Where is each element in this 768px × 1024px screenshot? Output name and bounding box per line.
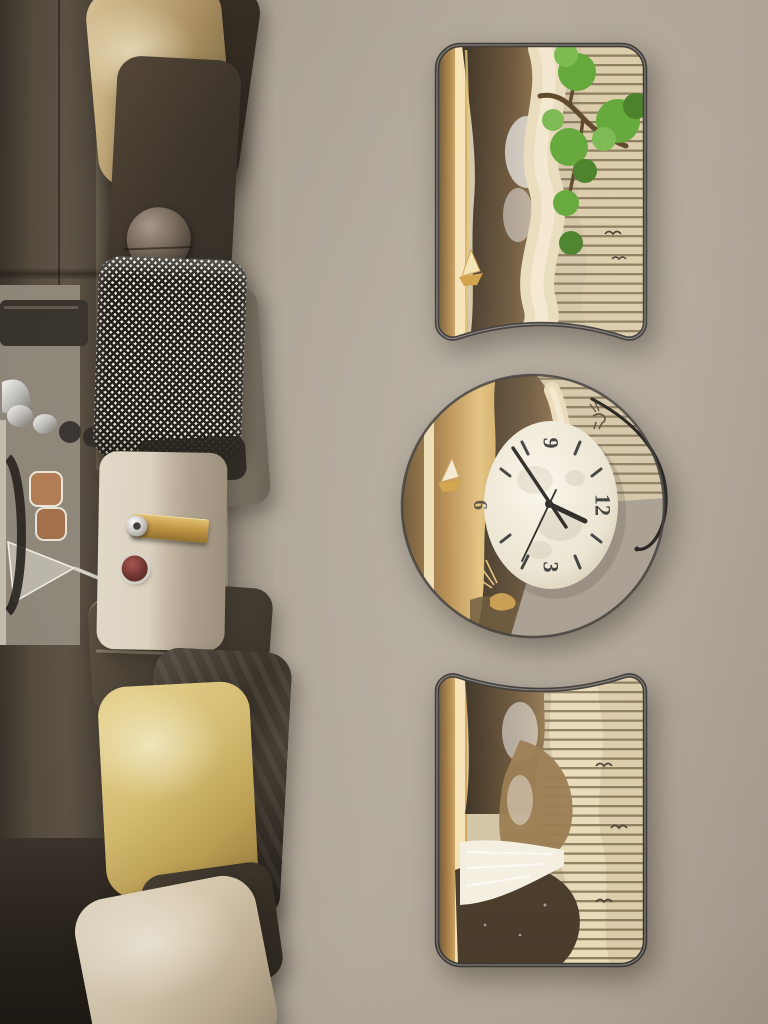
- sunlit-horizon: [455, 45, 465, 345]
- dark-bead: [59, 421, 81, 443]
- clock-numeral-6: 6: [469, 500, 491, 510]
- pillow-houndstooth: [93, 255, 248, 462]
- sunlit-horizon: [424, 375, 434, 641]
- sofa-seam: [58, 0, 60, 300]
- planet-ring: [124, 246, 193, 250]
- art-panel-bottom: [428, 658, 654, 974]
- clock-numeral-3: 3: [539, 562, 564, 573]
- pillow-cream-strap: [96, 451, 227, 651]
- round-ornament: [121, 555, 147, 581]
- art-panel-top: [428, 36, 654, 350]
- clock-numeral-9: 9: [539, 438, 564, 449]
- swirl-tail-end: [635, 547, 640, 552]
- whiskey-glass: [30, 472, 62, 506]
- clock-center-cap: [545, 500, 553, 508]
- clock-numeral-12: 12: [591, 494, 616, 516]
- chrome-bead: [7, 405, 33, 427]
- mist: [507, 775, 533, 825]
- glass-table-edge: [0, 420, 6, 645]
- living-room-photo: 9 12 3 6: [0, 0, 768, 1024]
- whiskey-glass: [36, 508, 66, 540]
- chrome-bead: [33, 414, 57, 434]
- art-panel-clock: 9 12 3 6: [392, 363, 682, 655]
- shelf-glint: [4, 306, 78, 309]
